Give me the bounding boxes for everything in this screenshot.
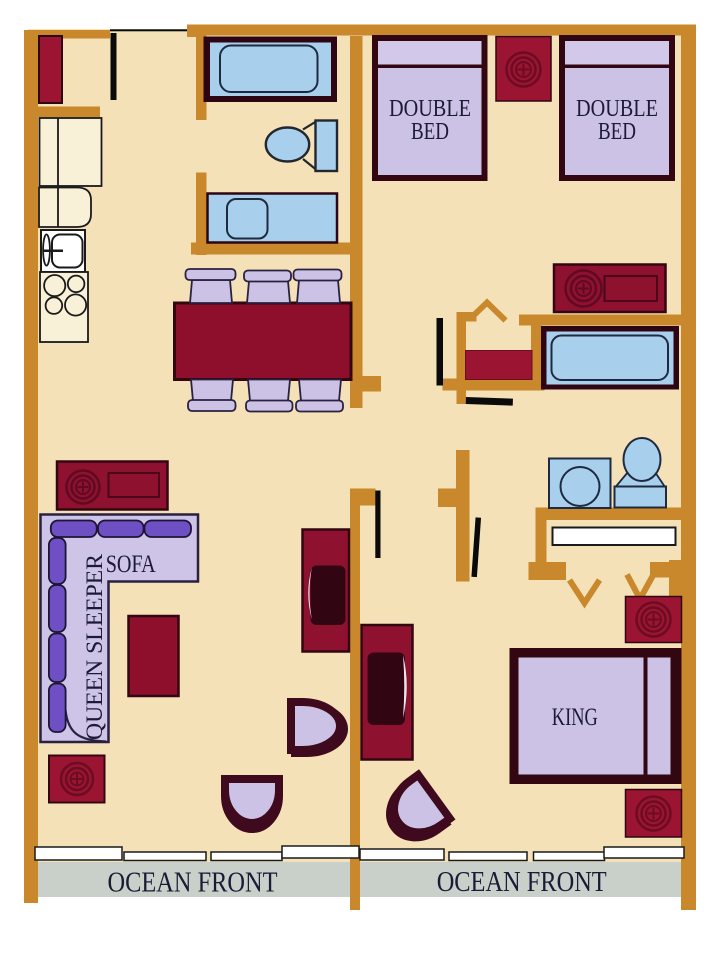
svg-text:SOFA: SOFA xyxy=(106,551,156,578)
svg-text:BED: BED xyxy=(598,119,636,145)
svg-text:BED: BED xyxy=(411,119,449,145)
svg-text:OCEAN FRONT: OCEAN FRONT xyxy=(437,867,607,898)
svg-text:OCEAN FRONT: OCEAN FRONT xyxy=(108,868,278,899)
svg-text:QUEEN SLEEPER: QUEEN SLEEPER xyxy=(82,554,108,740)
svg-text:KING: KING xyxy=(552,704,598,731)
